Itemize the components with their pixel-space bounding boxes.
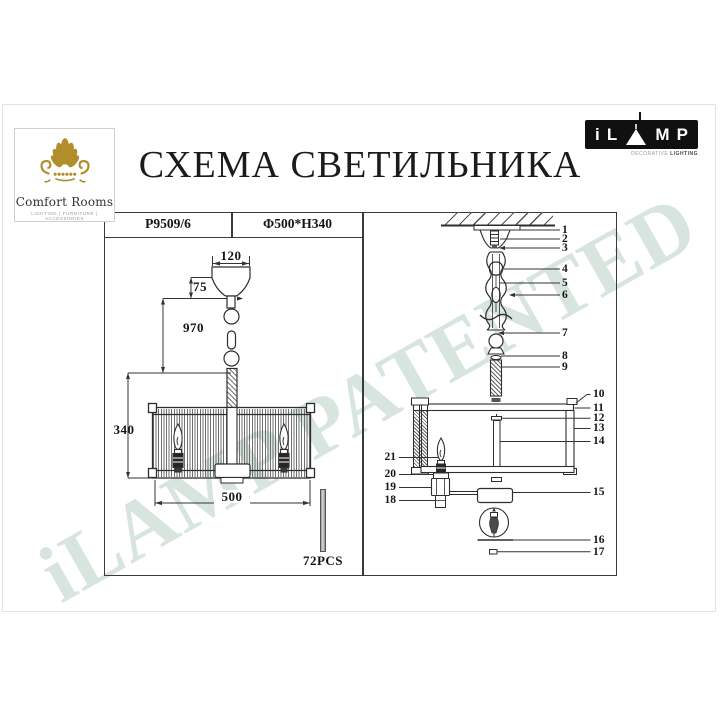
ilamp-subtitle-light: DECORATIVE: [631, 151, 670, 157]
dim-canopy-height: 75: [193, 280, 213, 293]
content-frame: [104, 212, 617, 576]
glass-rod-shade: [153, 409, 310, 477]
single-glass-rod: [320, 489, 326, 552]
ilamp-subtitle-bold: LIGHTING: [670, 151, 698, 157]
comfort-rooms-tagline: LIGHTING | FURNITURE | ACCESSORIES: [15, 211, 114, 221]
dim-shade-diameter: 500: [215, 490, 249, 503]
callout-13: 13: [593, 423, 605, 435]
callout-20: 20: [376, 469, 396, 481]
callout-9: 9: [562, 362, 568, 374]
callout-4: 4: [562, 264, 568, 276]
callout-5: 5: [562, 278, 568, 290]
glass-rod-count: 72PCS: [297, 554, 349, 567]
fixture-dimensions: Φ500*H340: [233, 217, 362, 231]
page-title: СХЕМА СВЕТИЛЬНИКА: [105, 143, 615, 187]
ilamp-letter: M: [655, 120, 669, 149]
panel-divider: [362, 212, 364, 576]
ilamp-subtitle: DECORATIVE LIGHTING: [585, 151, 698, 157]
callout-21: 21: [376, 452, 396, 464]
ilamp-logo: i L M P: [585, 120, 698, 149]
callout-19: 19: [376, 482, 396, 494]
model-number: P9509/6: [105, 217, 231, 231]
callout-18: 18: [376, 495, 396, 507]
callout-3: 3: [562, 243, 568, 255]
stem-rod-exploded: [490, 360, 501, 396]
callout-7: 7: [562, 328, 568, 340]
callout-6: 6: [562, 290, 568, 302]
schematic-page: iLAMP PATENTED: [0, 0, 720, 720]
comfort-rooms-logo: Comfort Rooms LIGHTING | FURNITURE | ACC…: [14, 128, 115, 222]
callout-10: 10: [593, 389, 605, 401]
ilamp-letter: P: [677, 120, 688, 149]
callout-17: 17: [593, 547, 605, 559]
ilamp-letter: i: [595, 120, 600, 149]
stem-rod: [227, 369, 237, 407]
dim-canopy-width: 120: [209, 249, 253, 262]
crown-icon: [22, 135, 108, 191]
callout-16: 16: [593, 535, 605, 547]
comfort-rooms-name: Comfort Rooms: [15, 195, 114, 209]
frame-rod-column: [414, 406, 428, 467]
ilamp-letter: L: [607, 120, 617, 149]
lamp-triangle-icon: [624, 124, 648, 145]
callout-14: 14: [593, 436, 605, 448]
callout-15: 15: [593, 487, 605, 499]
dim-shade-height: 340: [110, 423, 138, 436]
ceiling-hatch: [443, 212, 553, 225]
dim-suspension-length: 970: [183, 321, 211, 334]
